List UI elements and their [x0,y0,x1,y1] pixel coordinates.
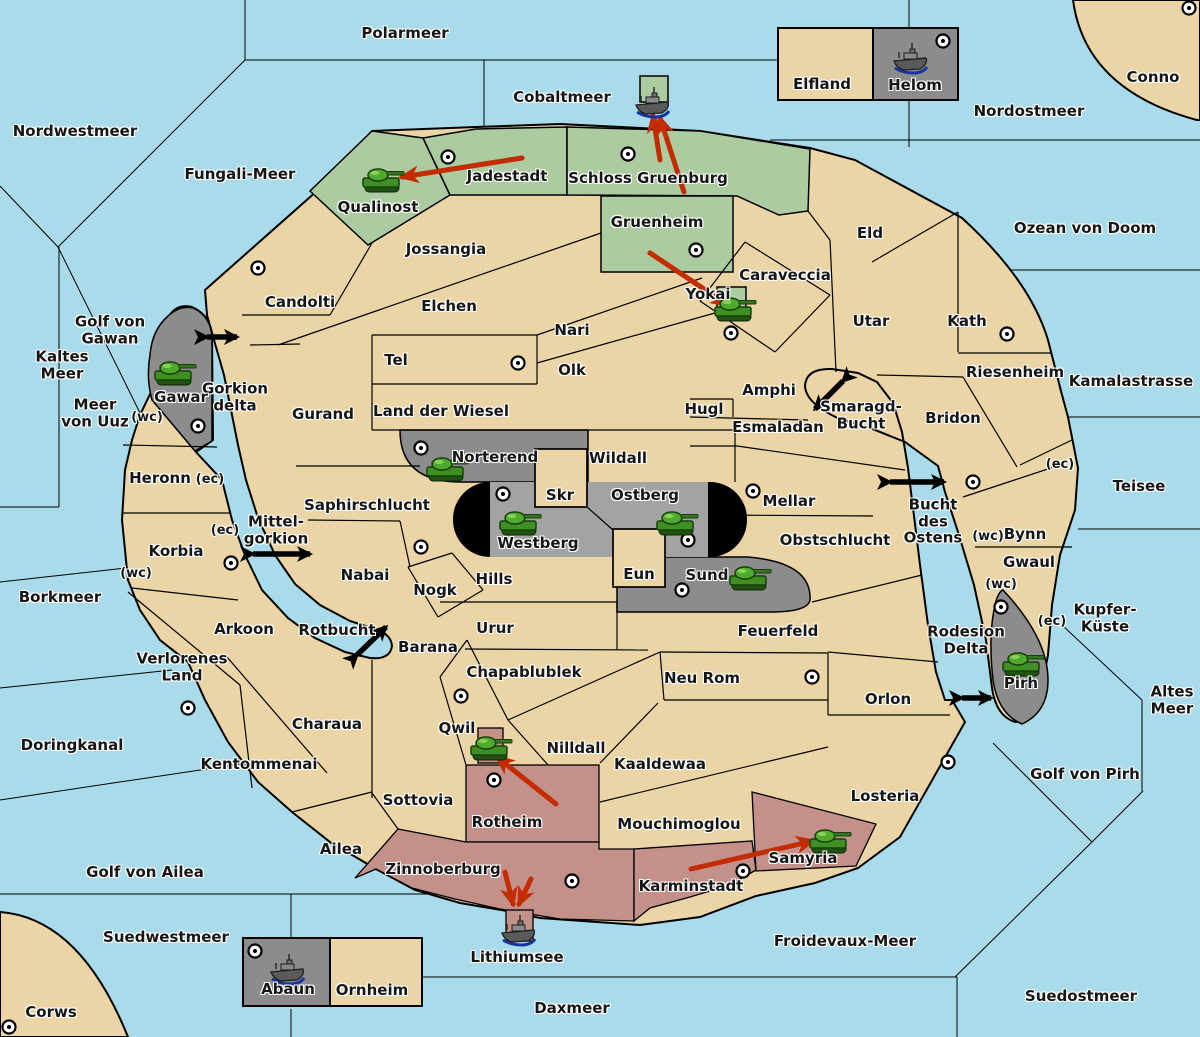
sea-label[interactable]: Nordwestmeer [13,123,138,140]
territory-label[interactable]: Kaaldewaa [614,756,706,773]
territory-label[interactable]: Bridon [925,410,981,427]
territory-label[interactable]: Helom [888,77,942,94]
city-dot [967,476,980,489]
city-dot [415,541,428,554]
city-dot [252,262,265,275]
city-dot [622,148,635,161]
territory-label[interactable]: Karminstadt [639,878,744,895]
territory-label[interactable]: Conno [1127,69,1180,86]
territory-label[interactable]: Hugl [684,401,723,418]
territory-label[interactable]: Charaua [292,716,362,733]
city-dot [566,875,579,888]
territory-label[interactable]: Mellar [763,493,816,510]
city-dot [3,1021,16,1034]
sea-label[interactable]: Cobaltmeer [513,89,611,106]
city-dot [806,671,819,684]
tank-icon[interactable] [730,567,771,590]
city-dot [995,601,1008,614]
territory-label[interactable]: Saphirschlucht [304,497,430,514]
territory-label[interactable]: Ostberg [611,487,679,504]
sea-label[interactable]: Doringkanal [21,737,124,754]
sea-label[interactable]: Rotbucht [298,622,375,639]
territory-label[interactable]: Abaun [261,981,315,998]
territory-label[interactable]: Amphi [742,382,796,399]
sea-label[interactable]: Smaragd- Bucht [820,399,902,432]
tank-icon[interactable] [500,512,541,535]
territory-label[interactable]: Nilldall [546,740,605,757]
coast-marker-label: (wc) [985,578,1017,592]
territory-label[interactable]: Nabai [341,567,390,584]
territory-label[interactable]: Barana [398,639,458,656]
territory-label[interactable]: Neu Rom [664,670,740,687]
city-dot [225,557,238,570]
territory-label[interactable]: Yokai [685,286,730,303]
coast-marker-label: (ec) [1046,458,1074,472]
game-map: PolarmeerNordwestmeerFungali-MeerCobaltm… [0,0,1200,1037]
territory-gruenheim [601,196,733,272]
territory-label[interactable]: Hills [476,571,513,588]
territory-label[interactable]: Gurand [292,406,354,423]
sea-label[interactable]: Daxmeer [534,1000,610,1017]
territory-label[interactable]: Schloss Gruenburg [568,170,728,187]
territory-label[interactable]: Feuerfeld [738,623,819,640]
sea-label[interactable]: Teisee [1113,478,1166,495]
sea-label[interactable]: Borkmeer [19,589,102,606]
city-dot [1183,2,1196,15]
sea-label[interactable]: Suedostmeer [1025,988,1137,1005]
territory-label[interactable]: Kath [947,313,987,330]
sea-label[interactable]: Rodesion Delta [927,624,1005,657]
territory-label[interactable]: Korbia [148,543,203,560]
territory-label[interactable]: Urur [476,620,514,637]
sea-label[interactable]: Kamalastrasse [1069,373,1193,390]
territory-label[interactable]: Olk [558,362,586,379]
coast-marker-label: (wc) [131,411,163,425]
territory-label[interactable]: Gawar [154,389,208,406]
city-dot [737,865,750,878]
territory-label[interactable]: Nogk [413,582,457,599]
territory-label[interactable]: Sottovia [383,792,454,809]
sea-label[interactable]: Gorkion delta [202,381,268,414]
territory-label[interactable]: Ornheim [336,982,408,999]
sea-label[interactable]: Kaltes Meer [35,349,88,382]
territory-label[interactable]: Utar [853,313,890,330]
sea-label[interactable]: Golf von Pirh [1030,766,1140,783]
sea-label[interactable]: Nordostmeer [974,103,1085,120]
territory-label[interactable]: Chapablublek [466,664,581,681]
city-dot [512,357,525,370]
territory-label[interactable]: Candolti [265,294,335,311]
territory-label[interactable]: Obstschlucht [780,532,891,549]
map-canvas [0,0,1200,1037]
territory-label[interactable]: Land der Wiesel [373,403,509,420]
territory-label[interactable]: Jossangia [406,241,487,258]
territory-label[interactable]: Verlorenes Land [136,651,227,684]
territory-label[interactable]: Heronn [129,470,191,487]
territory-label[interactable]: Elfland [793,76,851,93]
city-dot [249,945,262,958]
city-dot [690,244,703,257]
territory-label[interactable]: Esmaladan [732,419,824,436]
sea-label[interactable]: Polarmeer [361,25,448,42]
city-dot [747,485,760,498]
city-dot [442,151,455,164]
sea-label[interactable]: Mittel- gorkion [244,514,309,547]
territory-label[interactable]: Jadestadt [467,168,548,185]
territory-label[interactable]: Kentommenai [200,756,317,773]
sea-label[interactable]: Ozean von Doom [1014,220,1156,237]
city-dot [937,35,950,48]
city-dot [676,584,689,597]
city-dot [942,756,955,769]
territory-label[interactable]: Riesenheim [966,364,1064,381]
sea-label[interactable]: Golf von Gawan [75,314,145,347]
city-dot [725,327,738,340]
coast-marker-label: (wc) [120,567,152,581]
sea-label[interactable]: Bucht des Ostens [904,496,963,546]
territory-label[interactable]: Zinnoberburg [385,861,501,878]
sea-label[interactable]: Altes Meer [1150,684,1193,717]
territory-label[interactable]: Mouchimoglou [617,816,740,833]
territory-label[interactable]: Nari [554,322,589,339]
sea-label[interactable]: Lithiumsee [470,949,563,966]
territory-label[interactable]: Tel [384,352,408,369]
territory-label[interactable]: Westberg [497,535,578,552]
territory-label[interactable]: Bynn [1004,526,1047,543]
city-dot [182,702,195,715]
territory-label[interactable]: Sund [686,567,729,584]
sea-label[interactable]: Kupfer- Küste [1073,602,1136,635]
territory-label[interactable]: Qwil [439,720,476,737]
coast-marker-label: (ec) [211,524,239,538]
city-dot [497,488,510,501]
city-dot [455,690,468,703]
territory-label[interactable]: Corws [25,1004,77,1021]
territory-label[interactable]: Samyria [769,850,838,867]
tank-icon[interactable] [657,512,698,535]
territory-label[interactable]: Arkoon [214,621,274,638]
tank-icon[interactable] [363,169,404,192]
territory-label[interactable]: Wildall [589,450,647,467]
sea-label[interactable]: Suedwestmeer [103,929,229,946]
coast-marker-label: (ec) [196,473,224,487]
city-dot [1001,328,1014,341]
sea-label[interactable]: Fungali-Meer [185,166,296,183]
territory-label[interactable]: Elchen [421,298,477,315]
city-dot [488,774,501,787]
sea-label[interactable]: Froidevaux-Meer [774,933,916,950]
city-dot [192,420,205,433]
territory-label[interactable]: Rotheim [472,814,543,831]
territory-label[interactable]: Eun [623,566,655,583]
territory-label[interactable]: Orlon [865,691,911,708]
territory-label[interactable]: Gruenheim [611,214,704,231]
territory-label[interactable]: Ailea [320,841,362,858]
territory-label[interactable]: Gwaul [1003,554,1055,571]
territory-label[interactable]: Norterend [452,449,539,466]
territory-label[interactable]: Losteria [851,788,920,805]
city-dot [415,442,428,455]
territory-label[interactable]: Caraveccia [739,267,831,284]
tank-icon[interactable] [1003,653,1044,676]
tank-icon[interactable] [155,362,196,385]
territory-label[interactable]: Pirh [1004,675,1038,692]
coast-marker-label: (ec) [1038,615,1066,629]
sea-label[interactable]: Golf von Ailea [86,864,204,881]
territory-label[interactable]: Eld [857,225,883,242]
territory-label[interactable]: Skr [546,487,574,504]
sea-label[interactable]: Meer von Uuz [61,397,129,430]
coast-marker-label: (wc) [972,530,1004,544]
tank-icon[interactable] [471,737,512,760]
territory-label[interactable]: Qualinost [338,199,419,216]
